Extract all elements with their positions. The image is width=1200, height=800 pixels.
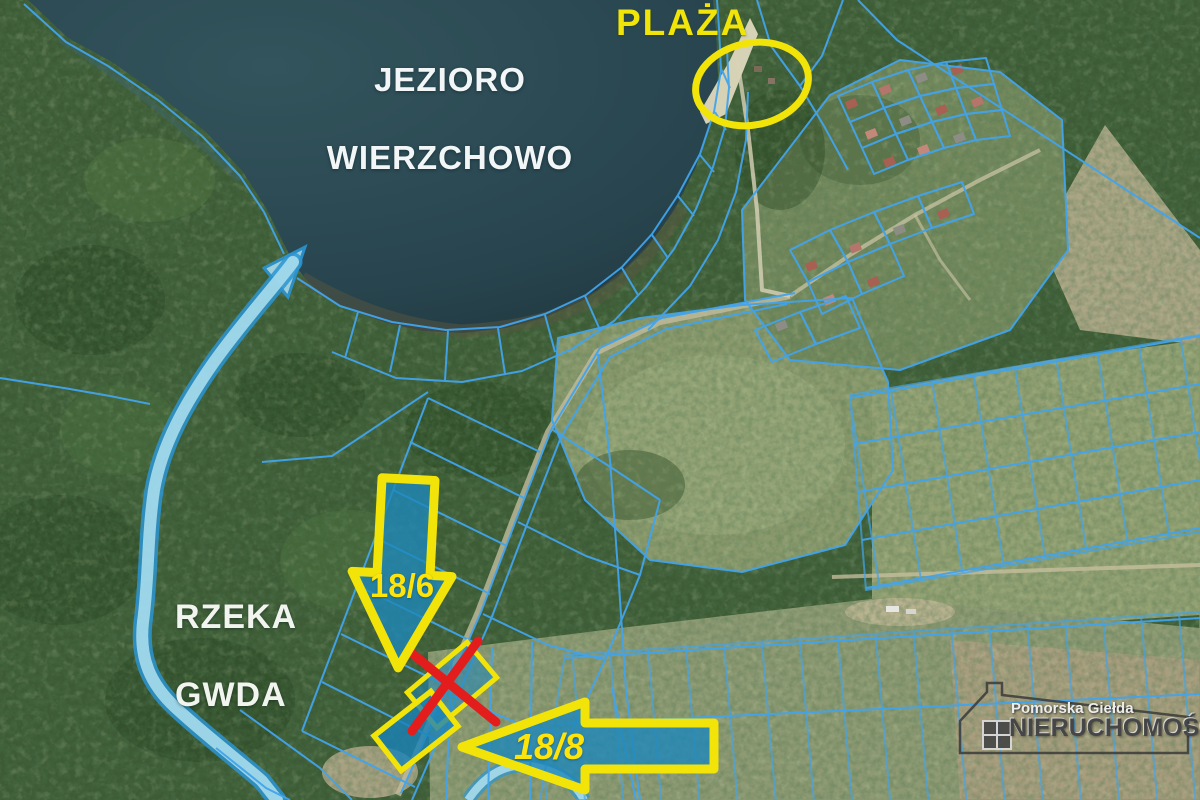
plot-number-18-6: 18/6 xyxy=(360,567,444,605)
river-name-label: RZEKA GWDA xyxy=(175,598,297,715)
lake-name-line2: WIERZCHOWO xyxy=(327,139,573,176)
lake-name-line1: JEZIORO xyxy=(374,61,526,98)
map-canvas: JEZIORO WIERZCHOWO PLAŻA RZEKA GWDA 18/6… xyxy=(0,0,1200,800)
lake-name-label: JEZIORO WIERZCHOWO xyxy=(320,60,580,177)
beach-building xyxy=(768,78,775,84)
agency-watermark: Pomorska Giełda NIERUCHOMOŚCI xyxy=(952,678,1200,764)
beach-building xyxy=(754,66,762,72)
beach-label: PLAŻA xyxy=(616,2,749,44)
river-name-line2: GWDA xyxy=(175,676,287,714)
window-icon xyxy=(982,720,1012,750)
plot-number-18-8: 18/8 xyxy=(514,726,584,768)
watermark-agency-type: NIERUCHOMOŚCI xyxy=(1009,714,1200,743)
river-name-line1: RZEKA xyxy=(175,598,297,636)
